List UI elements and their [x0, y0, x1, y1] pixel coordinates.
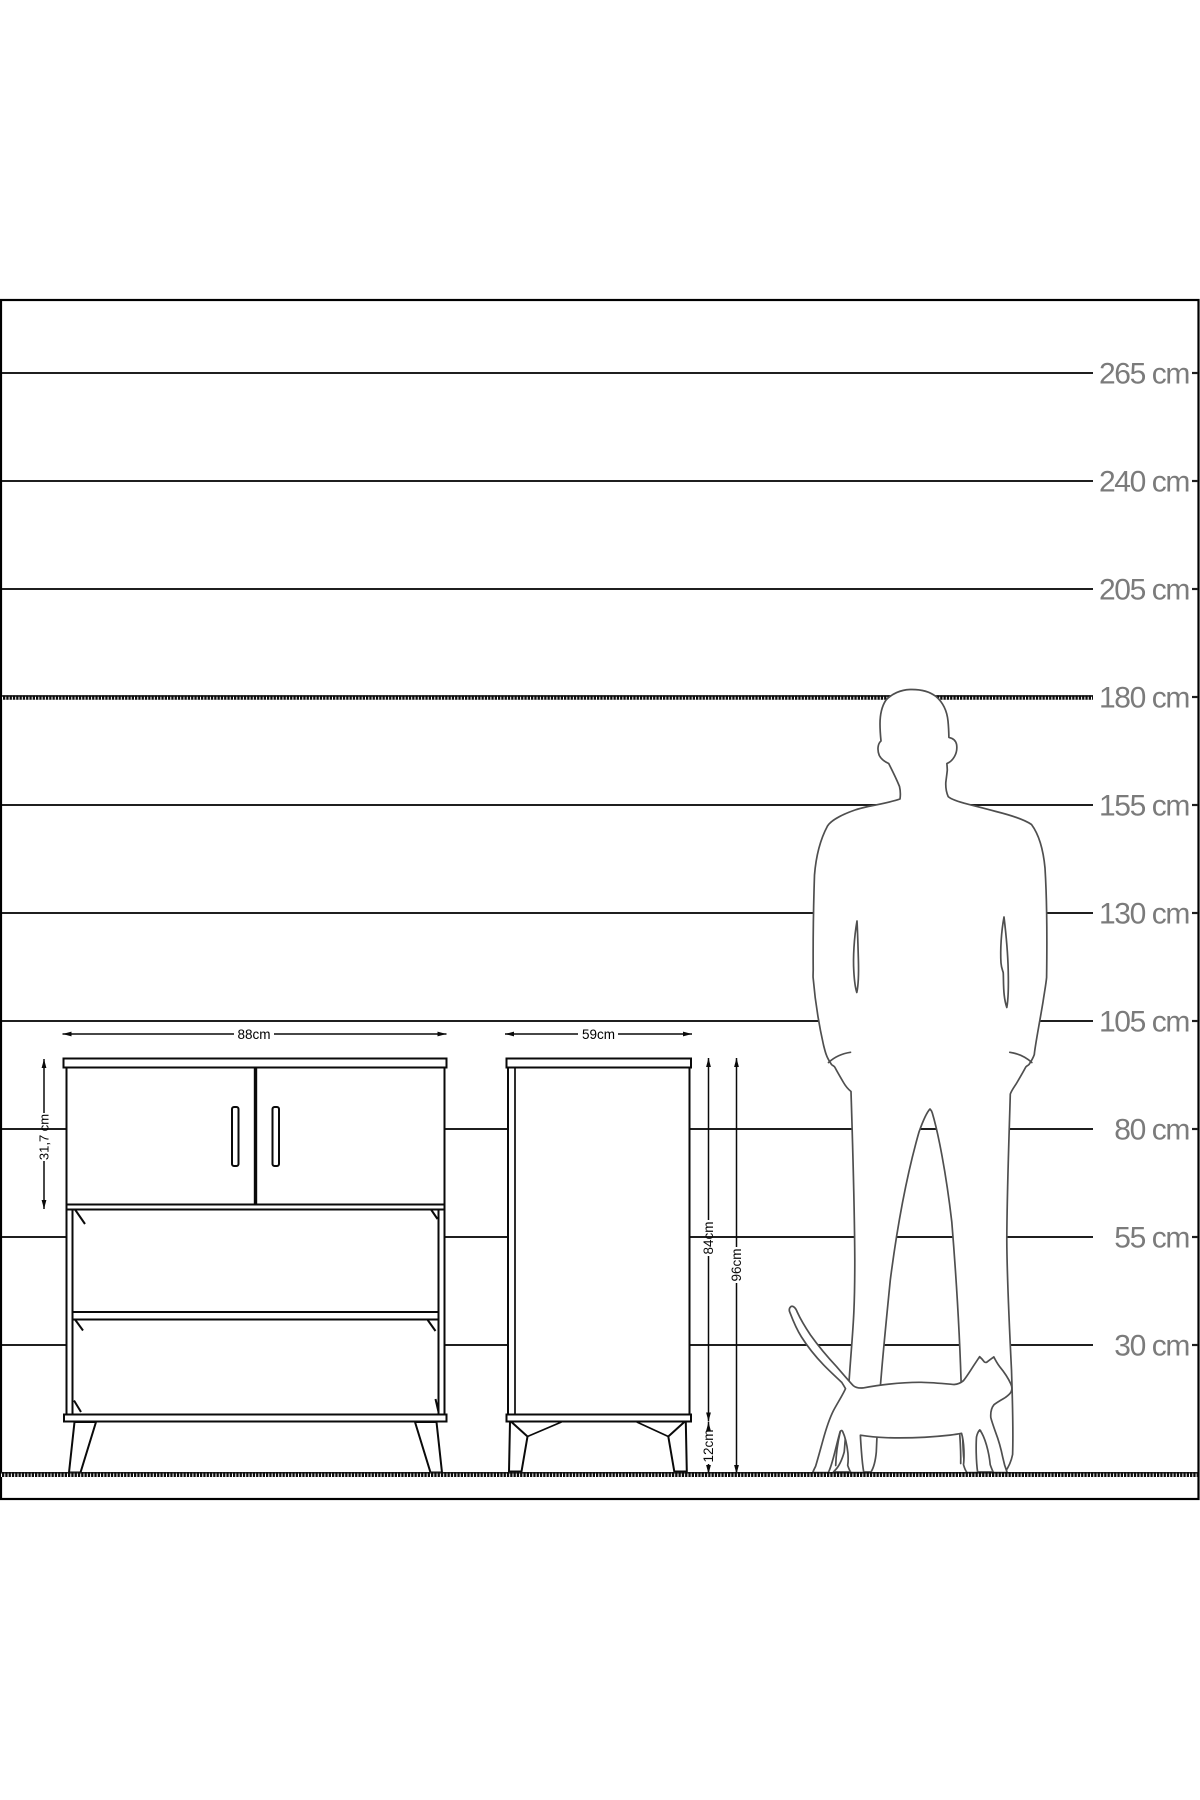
svg-text:180 cm: 180 cm: [1099, 682, 1189, 715]
svg-text:205 cm: 205 cm: [1099, 574, 1189, 607]
svg-text:59cm: 59cm: [582, 1027, 615, 1042]
svg-text:12cm: 12cm: [701, 1429, 716, 1462]
svg-text:105 cm: 105 cm: [1099, 1006, 1189, 1039]
svg-text:130 cm: 130 cm: [1099, 898, 1189, 931]
svg-text:80 cm: 80 cm: [1114, 1114, 1189, 1147]
svg-text:88cm: 88cm: [237, 1027, 270, 1042]
svg-text:31,7 cm: 31,7 cm: [37, 1114, 52, 1160]
svg-text:240 cm: 240 cm: [1099, 466, 1189, 499]
svg-text:30 cm: 30 cm: [1114, 1330, 1189, 1363]
svg-text:265 cm: 265 cm: [1099, 358, 1189, 391]
svg-text:84cm: 84cm: [701, 1221, 716, 1254]
svg-text:55 cm: 55 cm: [1114, 1222, 1189, 1255]
svg-text:155 cm: 155 cm: [1099, 790, 1189, 823]
svg-text:96cm: 96cm: [729, 1248, 744, 1281]
